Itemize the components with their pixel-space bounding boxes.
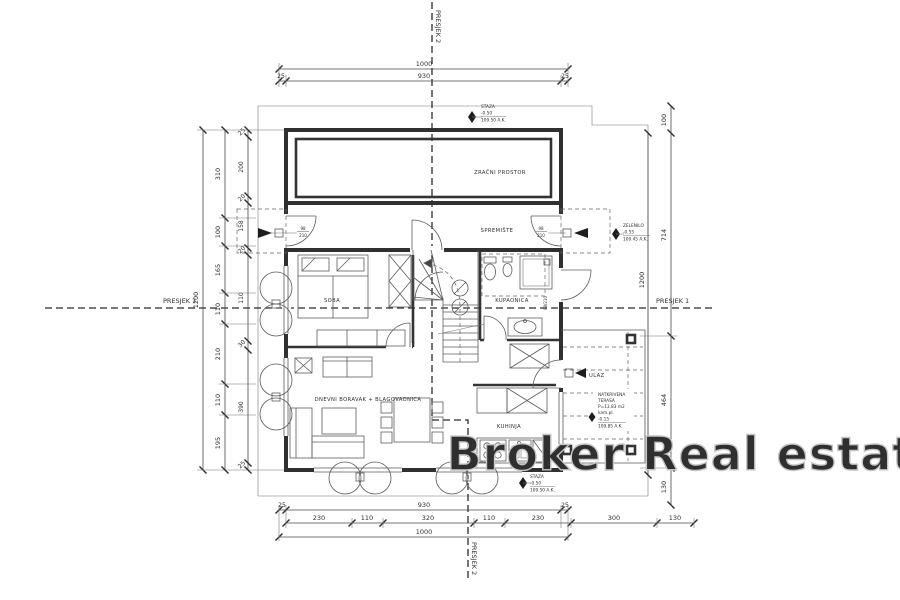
void-inner-edge	[296, 139, 551, 197]
svg-text:98: 98	[538, 226, 544, 231]
bidet	[503, 264, 512, 277]
entry-arrow-west	[258, 228, 272, 238]
room-label-soba: SOBA	[324, 298, 340, 304]
svg-text:110: 110	[361, 514, 373, 522]
svg-text:109.45 A.K.: 109.45 A.K.	[623, 237, 648, 243]
presjek-1-label-right: PRESJEK 1	[656, 297, 689, 305]
svg-text:P=13.83 m2: P=13.83 m2	[598, 404, 625, 410]
svg-text:210: 210	[299, 233, 307, 238]
svg-text:110: 110	[214, 303, 222, 315]
svg-text:230: 230	[313, 514, 325, 522]
room-label-ulaz: ULAZ	[589, 373, 605, 379]
section-lines: PRESJEK 2 PRESJEK 2 PRESJEK 1 PRESJEK 1	[45, 2, 712, 582]
svg-text:110: 110	[214, 394, 222, 406]
stair-direction-arrow	[424, 259, 432, 268]
dining-table	[394, 398, 430, 442]
svg-text:98/210: 98/210	[543, 296, 548, 311]
watermark-broker-real-estate: Broker Real estate	[447, 427, 900, 481]
door-east-garden	[561, 270, 591, 300]
svg-text:110: 110	[483, 514, 495, 522]
section-line-presjek-2	[432, 2, 468, 582]
terrace-column	[627, 335, 635, 343]
svg-text:130: 130	[669, 514, 681, 522]
room-labels: ZRAČNI PROSTOR SPREMIŠTE SOBA KUPAONICA …	[315, 169, 529, 430]
svg-text:100: 100	[660, 114, 668, 126]
floor-plan-drawing: PRESJEK 2 PRESJEK 2 PRESJEK 1 PRESJEK 1	[0, 0, 900, 600]
svg-text:158: 158	[238, 220, 245, 232]
level-staza-top: STAZA -0.50 109.50 A.K.	[468, 104, 506, 124]
svg-text:165: 165	[214, 264, 222, 276]
svg-text:390: 390	[238, 401, 245, 413]
svg-text:25: 25	[561, 73, 569, 80]
shower	[520, 256, 552, 289]
svg-text:kam.pl.: kam.pl.	[598, 410, 614, 416]
room-label-zracni-prostor: ZRAČNI PROSTOR	[474, 169, 526, 176]
door-storage-stairs	[412, 220, 442, 250]
svg-text:210: 210	[214, 348, 222, 360]
level-zelenilo: ZELENILO -0.55 109.45 A.K.	[612, 223, 650, 243]
presjek-2-label-bottom: PRESJEK 2	[470, 542, 478, 575]
toilet-tank	[484, 257, 496, 263]
svg-text:TERASA: TERASA	[597, 398, 615, 404]
coffee-table	[322, 408, 356, 434]
svg-text:30: 30	[237, 339, 247, 349]
svg-text:ZELENILO: ZELENILO	[623, 223, 644, 229]
wardrobe	[389, 255, 411, 307]
svg-text:-0.15: -0.15	[598, 417, 609, 423]
svg-text:-0.55: -0.55	[623, 230, 634, 236]
svg-text:25: 25	[277, 73, 285, 80]
svg-text:20: 20	[237, 193, 247, 203]
svg-text:-0.50: -0.50	[530, 481, 541, 487]
svg-text:-0.50: -0.50	[481, 111, 492, 117]
svg-text:25: 25	[561, 502, 569, 509]
floor-plan-page: PRESJEK 2 PRESJEK 2 PRESJEK 1 PRESJEK 1	[0, 0, 900, 600]
svg-text:98: 98	[300, 226, 306, 231]
presjek-2-label-top: PRESJEK 2	[434, 10, 442, 43]
svg-text:195: 195	[214, 437, 222, 449]
svg-text:25: 25	[237, 460, 247, 470]
svg-text:310: 310	[214, 168, 222, 180]
room-label-spremiste: SPREMIŠTE	[481, 227, 514, 234]
l-sofa-vertical	[290, 408, 312, 458]
room-label-kupaonica: KUPAONICA	[495, 298, 529, 304]
dim-top-930: 930	[418, 72, 430, 80]
counter-north	[477, 388, 507, 413]
bedroom-furniture	[298, 255, 411, 346]
sofa-small	[323, 357, 372, 377]
svg-text:320: 320	[422, 514, 434, 522]
svg-text:NATKRIVENA: NATKRIVENA	[598, 392, 625, 398]
svg-text:25: 25	[278, 502, 286, 509]
svg-text:109.50 A.K.: 109.50 A.K.	[481, 118, 506, 124]
svg-text:230: 230	[532, 514, 544, 522]
dim-bottom-1000: 1000	[416, 528, 433, 536]
dim-top-1000: 1000	[416, 60, 433, 68]
dim-right-1200: 1200	[638, 272, 646, 289]
staircase	[413, 250, 484, 362]
svg-text:100: 100	[214, 226, 222, 238]
entry-arrow-east	[574, 228, 588, 238]
svg-text:200: 200	[238, 161, 245, 173]
svg-text:714: 714	[660, 229, 668, 241]
l-sofa-horizontal	[312, 436, 364, 458]
svg-text:STAZA: STAZA	[481, 104, 495, 110]
room-label-dnevni-boravak: DNEVNI BORAVAK + BLAGOVAONICA	[315, 397, 422, 403]
svg-text:210: 210	[537, 233, 545, 238]
svg-text:300: 300	[608, 514, 620, 522]
dim-bottom-930: 930	[418, 501, 430, 509]
svg-text:110: 110	[238, 292, 245, 304]
bathroom-fixtures	[482, 254, 552, 368]
svg-text:25: 25	[237, 127, 247, 137]
toilet	[485, 264, 496, 280]
entrance-arrow	[575, 368, 586, 378]
svg-text:464: 464	[660, 394, 668, 406]
svg-text:130: 130	[660, 481, 668, 493]
stair-break-line	[438, 324, 484, 334]
plumbing-zone	[482, 254, 545, 296]
svg-text:109.50 A.K.: 109.50 A.K.	[530, 488, 555, 494]
dim-left-1200: 1200	[192, 292, 200, 309]
living-dining-furniture	[290, 357, 443, 458]
